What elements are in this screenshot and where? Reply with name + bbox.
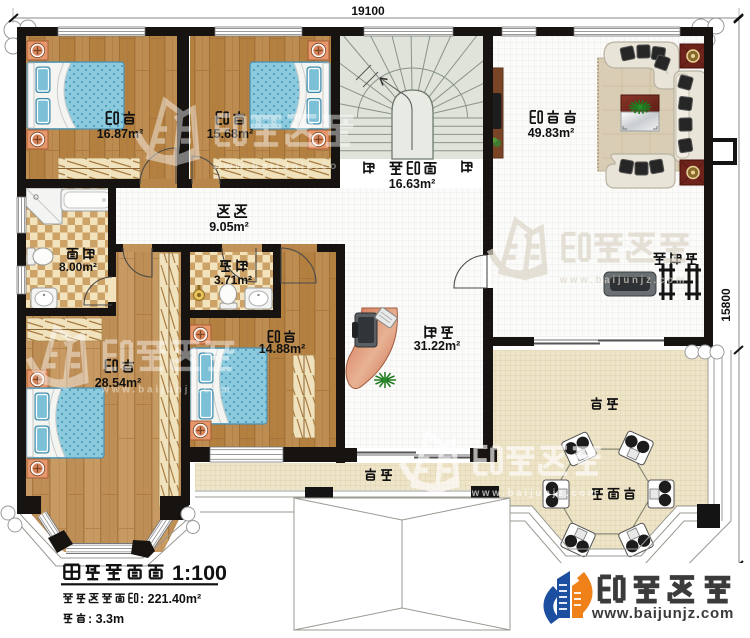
- svg-text:www.baijunjz.com: www.baijunjz.com: [212, 160, 352, 172]
- svg-text:www.baijunjz.com: www.baijunjz.com: [100, 384, 233, 395]
- svg-text:31.22m²: 31.22m²: [414, 339, 461, 353]
- svg-text:15800: 15800: [719, 288, 733, 322]
- svg-text:www.baijunjz.com: www.baijunjz.com: [591, 605, 734, 622]
- svg-text:8.00m²: 8.00m²: [59, 260, 97, 274]
- svg-text:14.88m²: 14.88m²: [259, 342, 306, 356]
- svg-text:: 3.3m: : 3.3m: [88, 612, 124, 626]
- svg-text:www.baijunjz.com: www.baijunjz.com: [471, 488, 600, 499]
- svg-text:3.71m²: 3.71m²: [214, 273, 252, 287]
- svg-text:49.83m²: 49.83m²: [528, 126, 575, 140]
- svg-text:19100: 19100: [351, 4, 385, 18]
- svg-text:www.baijunjz.com: www.baijunjz.com: [559, 275, 688, 286]
- svg-text:1:100: 1:100: [172, 561, 227, 585]
- svg-text:16.63m²: 16.63m²: [389, 177, 436, 191]
- svg-text:: 221.40m²: : 221.40m²: [140, 592, 201, 606]
- svg-text:9.05m²: 9.05m²: [209, 220, 249, 234]
